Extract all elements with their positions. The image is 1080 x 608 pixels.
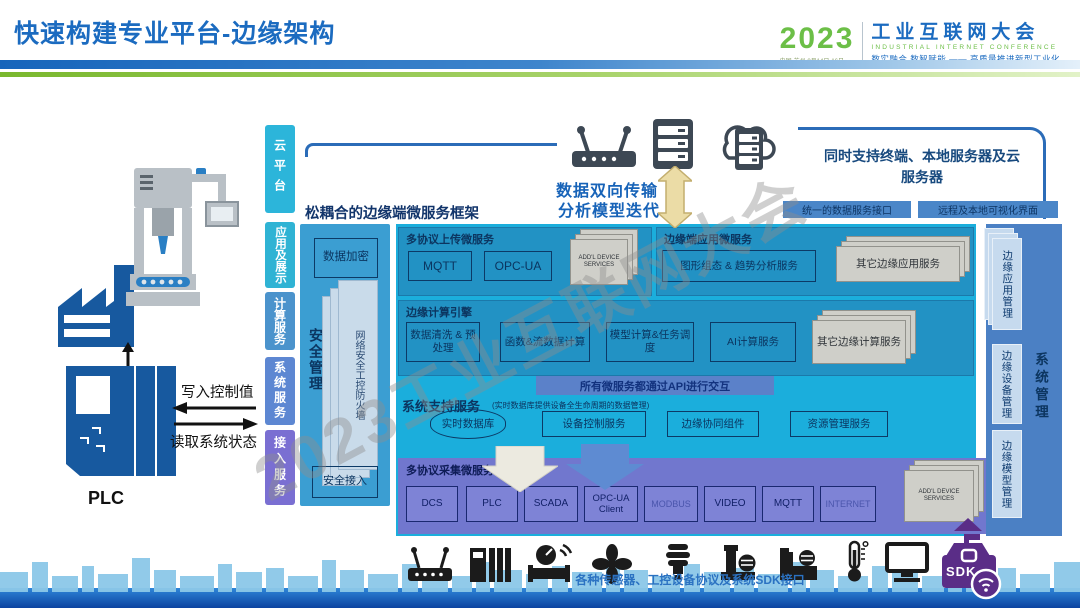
layer-bar-access: 接入服务	[265, 430, 295, 505]
sdk-toolbox-icon	[936, 518, 1002, 604]
upload-more-stack: ADD'L DEVICE SERVICES	[570, 239, 628, 285]
slide: 快速构建专业平台-边缘架构 2023 中国·苏州 8月14日-16日 工业互联网…	[0, 0, 1080, 608]
device-control-box: 设备控制服务	[542, 411, 646, 437]
data-interface-bar: 统一的数据服务接口	[783, 201, 911, 218]
graphics-trend-box: 图形组态 & 趋势分析服务	[662, 250, 816, 282]
sdk-label: SDK	[946, 564, 976, 579]
logo-name-en: INDUSTRIAL INTERNET CONFERENCE	[871, 44, 1060, 51]
down-arrow-gray-icon	[482, 446, 558, 492]
mqtt-collect-box: MQTT	[762, 486, 814, 522]
model-schedule-box: 模型计算&任务调度	[606, 322, 694, 362]
opcua-client-box: OPC-UA Client	[584, 486, 638, 522]
left-arrow-icon	[172, 402, 258, 414]
plc-module-icon	[470, 544, 512, 584]
api-interact-bar: 所有微服务都通过API进行交互	[536, 376, 774, 395]
upload-services-label: 多协议上传微服务	[406, 231, 494, 247]
system-mgmt-label: 系统管理	[1030, 352, 1050, 464]
data-clean-box: 数据清洗 & 预处理	[406, 322, 480, 362]
layer-bar-app: 应用及展示	[265, 222, 295, 288]
visualization-bar: 远程及本地可视化界面	[918, 201, 1058, 218]
edge-collab-box: 边缘协同组件	[667, 411, 759, 437]
layer-bar-system: 系统服务	[265, 357, 295, 425]
logo-year-block: 2023 中国·苏州 8月14日-16日	[780, 24, 855, 65]
layer-bar-compute: 计算服务	[265, 292, 295, 350]
internet-box: INTERNET	[820, 486, 876, 522]
framework-title: 松耦合的边缘端微服务框架	[305, 202, 479, 223]
other-edge-app-stack: 其它边缘应用服务	[836, 246, 960, 282]
realtime-db-box: 实时数据库	[430, 409, 506, 439]
right-arrow-icon	[172, 418, 258, 430]
read-status-label: 读取系统状态	[170, 431, 257, 452]
collect-services-label: 多协议采集微服务	[406, 462, 494, 478]
router-icon	[572, 124, 636, 168]
edge-app-label: 边缘端应用微服务	[664, 231, 752, 247]
header-rule-green	[0, 72, 1080, 77]
transfer-label-2: 分析模型迭代	[558, 197, 660, 221]
modbus-box: MODBUS	[644, 486, 698, 522]
logo-name-block: 工业互联网大会 INDUSTRIAL INTERNET CONFERENCE 数…	[871, 23, 1060, 65]
thermometer-icon	[840, 540, 870, 584]
page-title: 快速构建专业平台-边缘架构	[14, 14, 335, 50]
down-arrow-blue-icon	[566, 444, 644, 490]
write-control-label: 写入控制值	[181, 381, 254, 402]
server-icon	[652, 118, 694, 170]
mqtt-box: MQTT	[408, 251, 472, 281]
data-encrypt-box: 数据加密	[314, 238, 378, 278]
edge-app-mgmt-box: 边缘应用管理	[992, 238, 1022, 330]
router-small-icon	[408, 546, 452, 584]
plc-cabinet-icon	[66, 366, 178, 480]
security-access-box: 安全接入	[312, 466, 378, 498]
compute-engine-label: 边缘计算引擎	[406, 304, 472, 320]
resource-mgmt-box: 资源管理服务	[790, 411, 888, 437]
ai-compute-box: AI计算服务	[710, 322, 796, 362]
support-services-note: (实时数据库提供设备全生命周期的数据管理)	[492, 400, 649, 411]
monitor-icon	[884, 542, 930, 584]
stream-compute-box: 函数&流数据计算	[500, 322, 590, 362]
opcua-box: OPC-UA	[484, 251, 552, 281]
collect-more-stack: ADD'L DEVICE SERVICES	[904, 470, 974, 522]
dcs-box: DCS	[406, 486, 458, 522]
other-compute-stack: 其它边缘计算服务	[812, 320, 906, 364]
edge-device-mgmt-box: 边缘设备管理	[992, 344, 1022, 424]
firewall-stack: 网络安全工控防火墙	[338, 280, 378, 470]
plc-label: PLC	[88, 488, 124, 509]
header-rule-blue	[0, 60, 1080, 69]
cloud-server-icon	[712, 112, 784, 174]
support-note: 同时支持终端、本地服务器及云服务器	[822, 146, 1022, 188]
bottom-caption: 各种传感器、工控设备协议及系统SDK接口	[540, 571, 840, 588]
layer-bar-cloud: 云平台	[265, 125, 295, 213]
logo-name-cn: 工业互联网大会	[871, 23, 1060, 43]
logo-year: 2023	[780, 24, 855, 54]
cnc-machine-icon	[122, 168, 244, 344]
bidirectional-arrow-icon	[658, 166, 692, 228]
left-bracket-line	[305, 143, 557, 157]
video-box: VIDEO	[704, 486, 756, 522]
edge-model-mgmt-box: 边缘模型管理	[992, 430, 1022, 518]
